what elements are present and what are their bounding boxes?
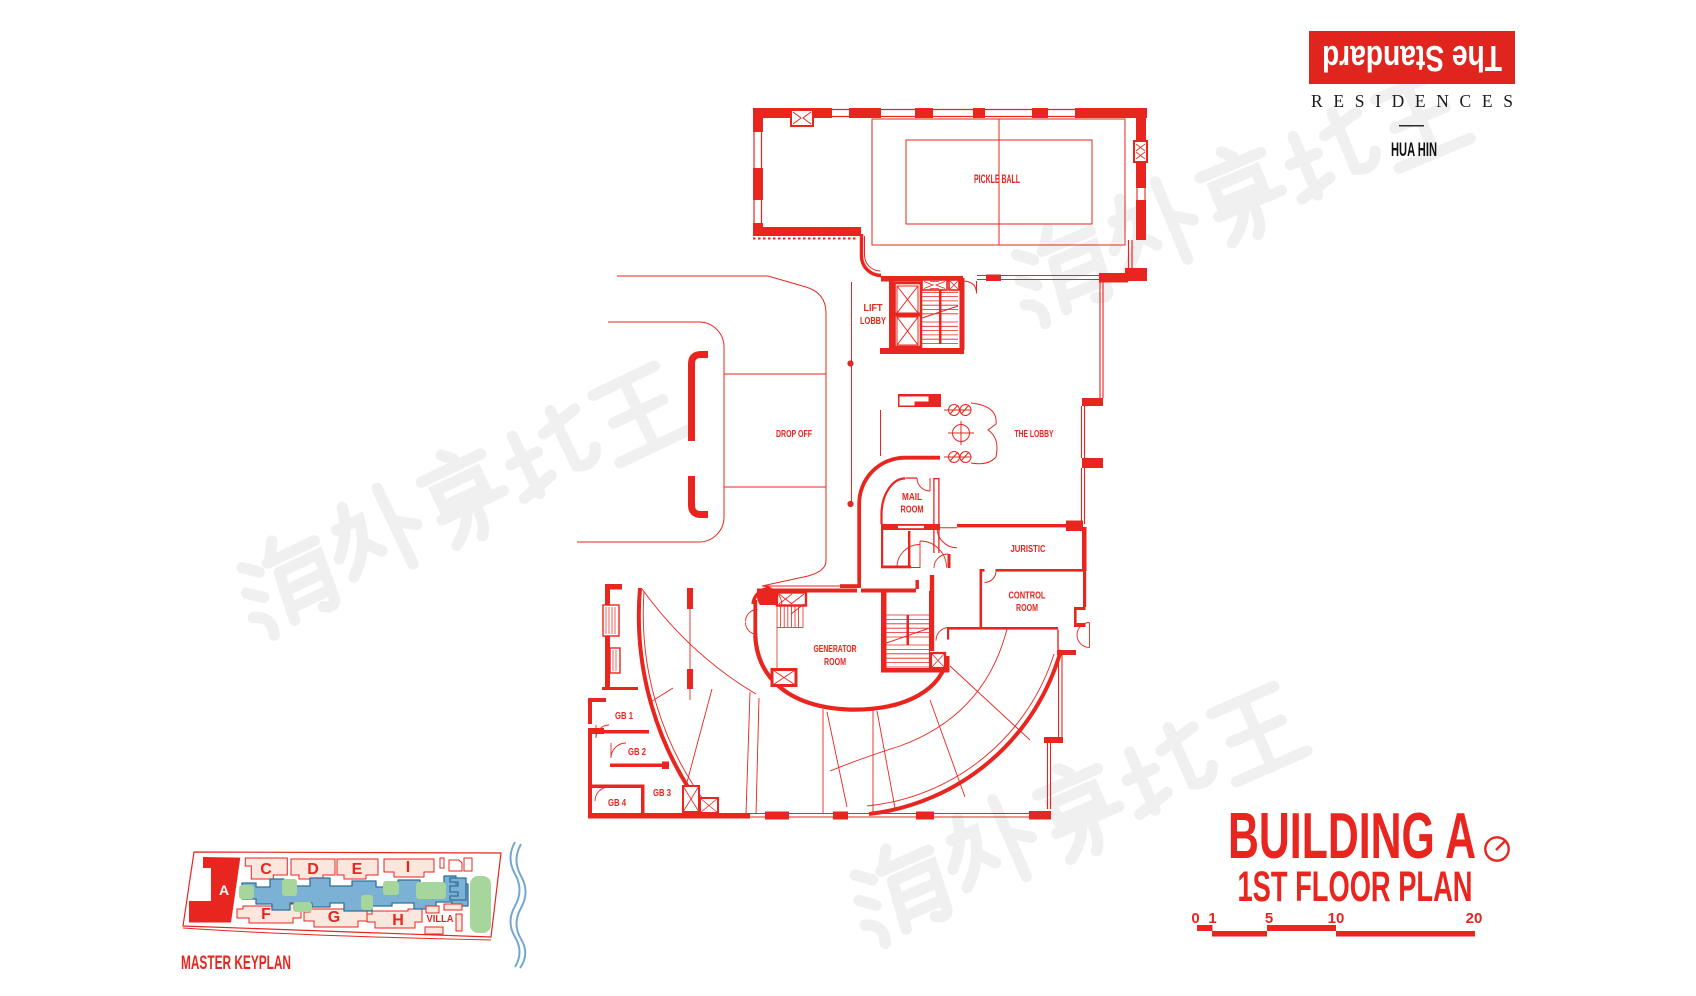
svg-text:GB 1: GB 1 [615,711,633,722]
svg-text:THE LOBBY: THE LOBBY [1015,428,1054,440]
svg-text:JURISTIC: JURISTIC [1011,544,1046,555]
svg-text:LIFT: LIFT [864,303,883,314]
svg-text:HUA HIN: HUA HIN [1391,140,1437,161]
svg-text:ROOM: ROOM [1016,603,1038,614]
svg-text:0: 0 [1191,910,1199,927]
svg-text:LOBBY: LOBBY [860,316,886,327]
svg-text:DROP OFF: DROP OFF [776,428,812,440]
svg-text:D: D [307,861,319,878]
svg-text:C: C [260,861,272,878]
svg-text:GB 2: GB 2 [628,747,646,758]
svg-text:G: G [328,909,340,926]
svg-text:1ST FLOOR PLAN: 1ST FLOOR PLAN [1238,863,1473,911]
svg-text:GENERATOR: GENERATOR [814,644,858,655]
svg-text:ROOM: ROOM [901,505,924,516]
svg-text:20: 20 [1466,910,1483,927]
svg-text:GB 4: GB 4 [608,798,626,809]
svg-text:H: H [392,912,404,929]
svg-text:A: A [219,882,229,898]
svg-text:VILLA: VILLA [427,914,454,925]
svg-text:10: 10 [1328,910,1345,927]
svg-text:The Standard: The Standard [1322,38,1502,79]
svg-text:CONTROL: CONTROL [1009,591,1046,602]
svg-text:I: I [406,859,410,876]
svg-text:5: 5 [1265,910,1273,927]
svg-text:E: E [352,861,363,878]
svg-text:GB 3: GB 3 [653,788,671,799]
svg-text:ROOM: ROOM [824,657,846,668]
svg-text:1: 1 [1208,910,1216,927]
svg-text:MAIL: MAIL [902,492,922,503]
svg-text:MASTER KEYPLAN: MASTER KEYPLAN [181,953,291,974]
svg-text:PICKLE BALL: PICKLE BALL [974,174,1020,186]
svg-text:BUILDING A: BUILDING A [1228,799,1476,872]
svg-text:F: F [261,906,271,923]
